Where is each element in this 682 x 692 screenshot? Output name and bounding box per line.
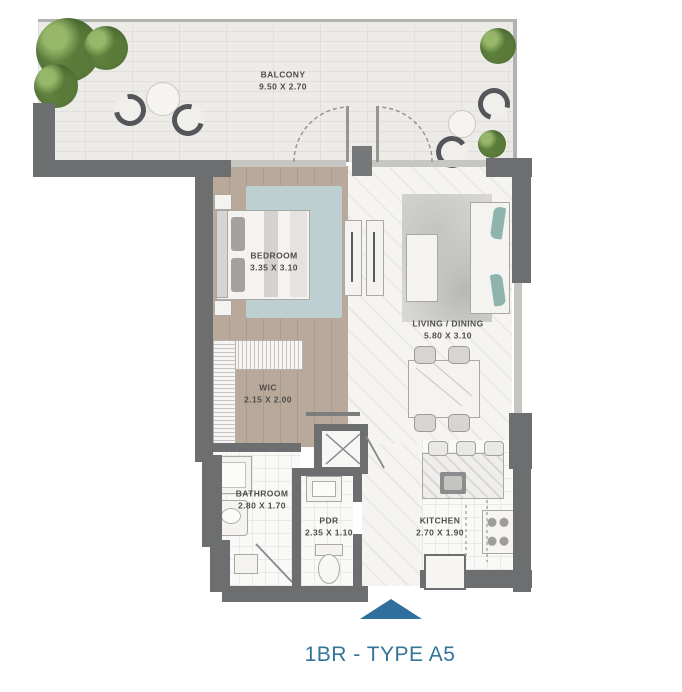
wall-left bbox=[195, 162, 213, 462]
entry-arrow-icon bbox=[360, 599, 422, 619]
wall-bottom-left bbox=[222, 586, 368, 602]
media-console bbox=[366, 220, 384, 296]
pdr-label: PDR 2.35 X 1.10 bbox=[305, 515, 353, 540]
pdr-sink-basin bbox=[312, 481, 336, 497]
floor-plan: BALCONY 9.50 X 2.70 BEDROOM 3.35 X 3.10 … bbox=[0, 0, 682, 692]
dining-chair bbox=[414, 414, 436, 432]
corridor-floor bbox=[362, 444, 422, 586]
bathroom-wc bbox=[234, 554, 258, 574]
balcony-table-icon bbox=[448, 110, 476, 138]
balcony-label: BALCONY 9.50 X 2.70 bbox=[259, 69, 307, 94]
bar-stool bbox=[484, 441, 504, 456]
room-name: LIVING / DINING bbox=[412, 318, 483, 330]
shower-tray bbox=[220, 462, 246, 488]
bed-pillow bbox=[231, 217, 245, 251]
wall-bathroom-top bbox=[213, 443, 301, 452]
kitchen-sink-basin bbox=[444, 476, 462, 490]
tv-console bbox=[344, 220, 362, 296]
tree-icon bbox=[478, 130, 506, 158]
room-dims: 9.50 X 2.70 bbox=[259, 81, 307, 93]
room-dims: 2.15 X 2.00 bbox=[244, 394, 292, 406]
wall-pdr-right-lower bbox=[353, 534, 362, 586]
room-name: BEDROOM bbox=[250, 250, 298, 262]
dining-table bbox=[408, 360, 480, 418]
nightstand bbox=[214, 194, 232, 210]
balcony-door-leaf-left bbox=[346, 106, 349, 162]
wall-left-step bbox=[202, 455, 222, 547]
bathroom-label: BATHROOM 2.80 X 1.70 bbox=[236, 488, 289, 513]
media-console-handle bbox=[373, 232, 375, 282]
wall-right-upper bbox=[512, 160, 531, 283]
bar-stool bbox=[456, 441, 476, 456]
plan-title: 1BR - TYPE A5 bbox=[305, 643, 456, 667]
dining-chair bbox=[448, 346, 470, 364]
tree-icon bbox=[34, 64, 78, 108]
cooktop bbox=[482, 510, 514, 554]
fridge bbox=[424, 554, 466, 590]
room-name: WIC bbox=[244, 382, 292, 394]
coffee-table bbox=[406, 234, 438, 302]
balcony-door-leaf-right bbox=[376, 106, 379, 162]
dining-chair bbox=[414, 346, 436, 364]
toilet-bowl bbox=[318, 554, 340, 584]
wic-sliding-door bbox=[306, 412, 360, 416]
wall-pdr-left bbox=[292, 468, 301, 586]
wall-left-lower bbox=[210, 540, 230, 592]
room-dims: 5.80 X 3.10 bbox=[412, 330, 483, 342]
room-dims: 2.70 X 1.90 bbox=[416, 527, 464, 539]
dining-chair bbox=[448, 414, 470, 432]
wic-label: WIC 2.15 X 2.00 bbox=[244, 382, 292, 407]
window-right bbox=[514, 283, 522, 414]
window-bedroom bbox=[231, 160, 346, 167]
bed-pillow bbox=[231, 258, 245, 292]
bed-headboard bbox=[216, 210, 228, 298]
nightstand bbox=[214, 300, 232, 316]
room-name: PDR bbox=[305, 515, 353, 527]
kitchen-label: KITCHEN 2.70 X 1.90 bbox=[416, 515, 464, 540]
tree-icon bbox=[84, 26, 128, 70]
bedroom-label: BEDROOM 3.35 X 3.10 bbox=[250, 250, 298, 275]
room-dims: 2.80 X 1.70 bbox=[236, 500, 289, 512]
room-name: KITCHEN bbox=[416, 515, 464, 527]
balcony-door-post bbox=[352, 146, 372, 176]
tree-icon bbox=[480, 28, 516, 64]
tv-console-handle bbox=[351, 232, 353, 282]
wall-right-column bbox=[509, 413, 532, 469]
room-name: BALCONY bbox=[259, 69, 307, 81]
room-name: BATHROOM bbox=[236, 488, 289, 500]
window-living bbox=[372, 160, 486, 167]
bar-stool bbox=[428, 441, 448, 456]
living-dining-label: LIVING / DINING 5.80 X 3.10 bbox=[412, 318, 483, 343]
shaft-interior bbox=[322, 431, 360, 467]
wardrobe bbox=[213, 340, 236, 446]
room-dims: 3.35 X 3.10 bbox=[250, 262, 298, 274]
room-dims: 2.35 X 1.10 bbox=[305, 527, 353, 539]
balcony-railing-top bbox=[38, 19, 516, 22]
